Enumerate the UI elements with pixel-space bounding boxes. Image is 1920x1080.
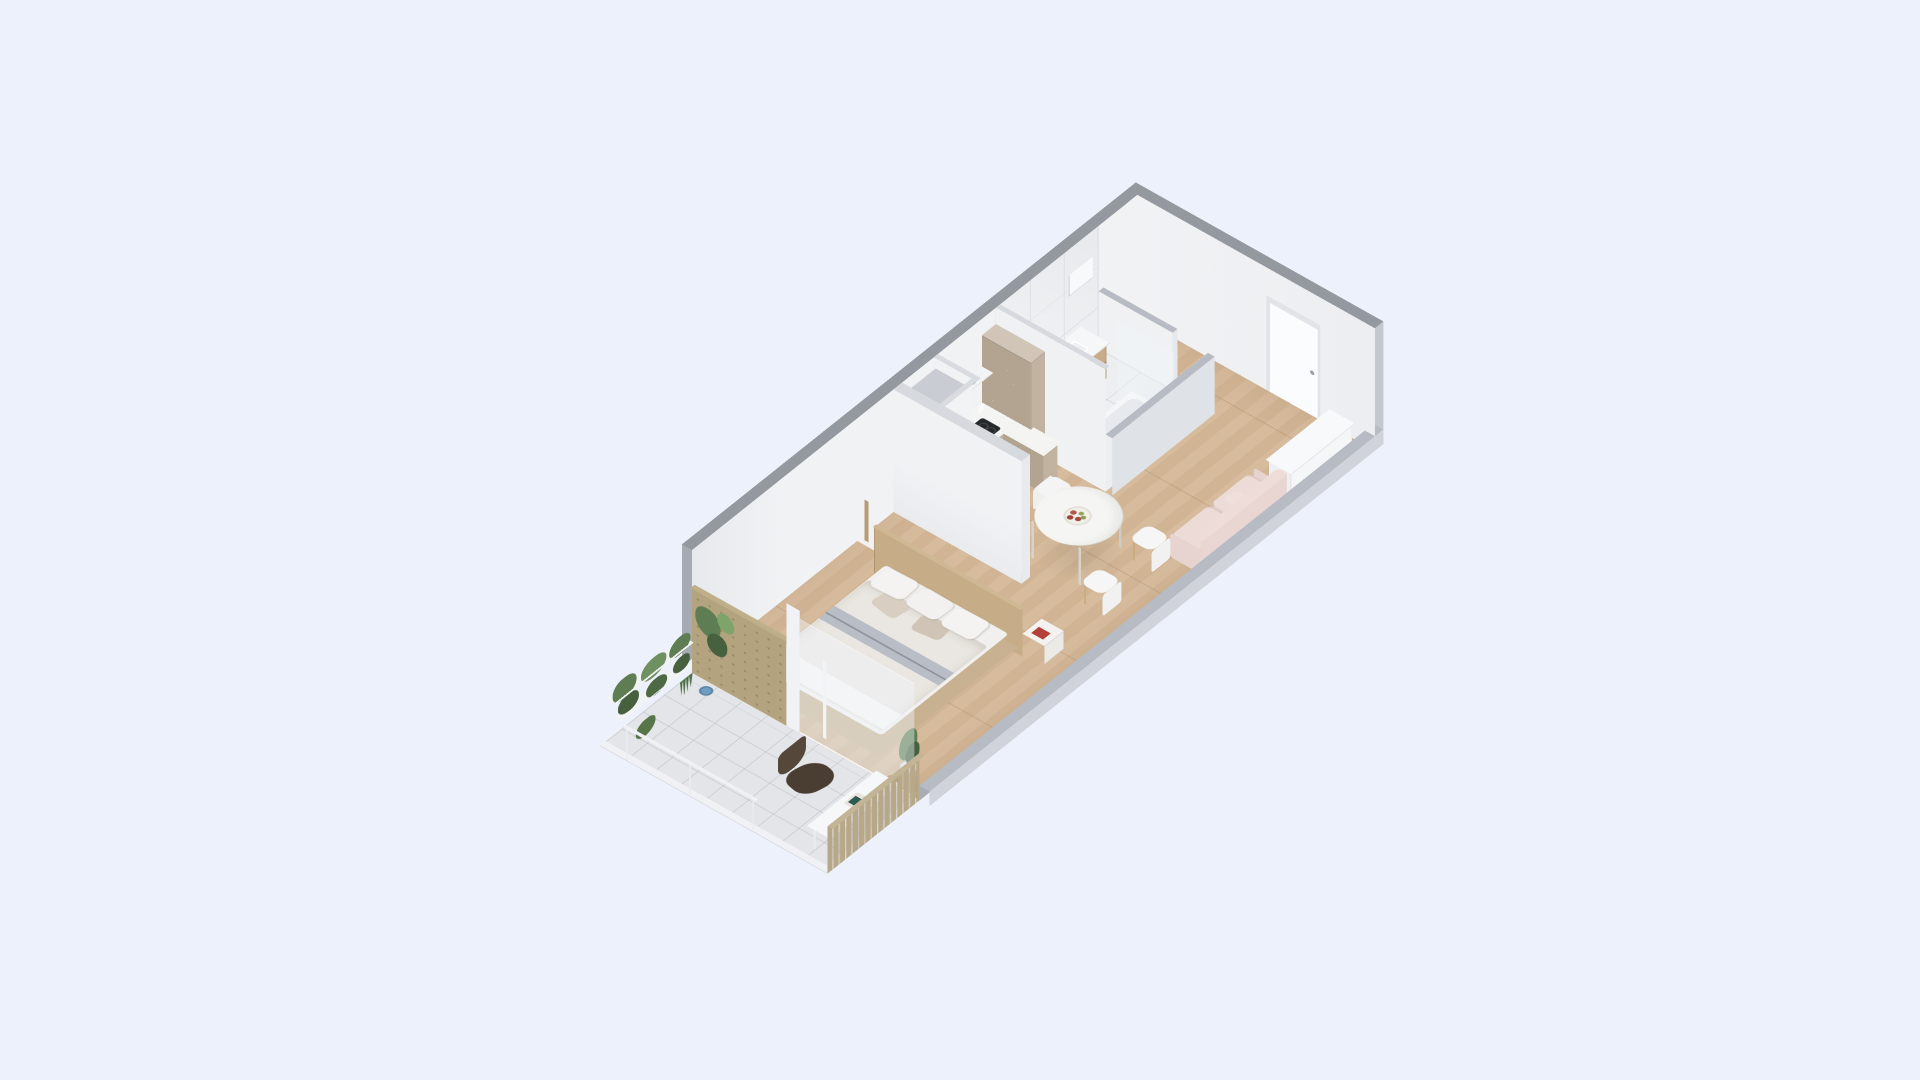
- apple-red: [1065, 514, 1074, 520]
- partition-end-face: [1022, 455, 1030, 584]
- bathroom-wall-niche: [1069, 257, 1093, 297]
- floorplan-render: [40, 16, 1920, 1080]
- wood-table-lamp: [864, 499, 868, 542]
- railing-post: [626, 727, 628, 761]
- balcony-door-pillar: [786, 603, 799, 733]
- railing-post: [752, 798, 754, 832]
- table-leg: [1079, 547, 1082, 586]
- door-handle: [1310, 370, 1314, 376]
- table-leg: [1031, 520, 1034, 559]
- climbing-plant-leaf: [707, 629, 727, 662]
- railing-post: [689, 762, 691, 796]
